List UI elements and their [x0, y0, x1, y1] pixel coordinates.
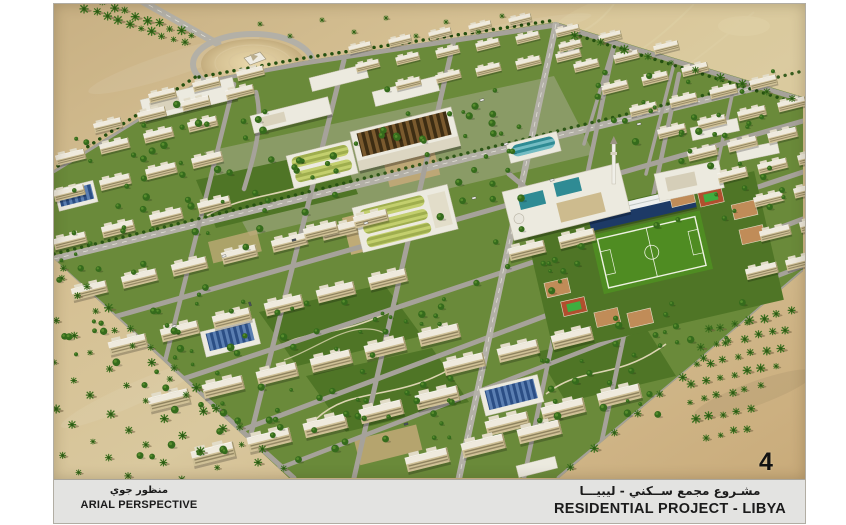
caption-right-english: RESIDENTIAL PROJECT - LIBYA — [545, 500, 795, 518]
masterplan-scene — [54, 4, 805, 479]
title-block: منظور جوي ARIAL PERSPECTIVE مشـروع مجمع … — [54, 479, 805, 523]
caption-left-arabic: منظور جوي — [64, 484, 214, 498]
page-number: 4 — [748, 448, 784, 477]
caption-right-arabic: مشـروع مجمع ســكني - ليبيـــا — [545, 483, 795, 500]
caption-left-english: ARIAL PERSPECTIVE — [64, 498, 214, 512]
aerial-rendering: 4 — [54, 4, 805, 479]
caption-right: مشـروع مجمع ســكني - ليبيـــا RESIDENTIA… — [545, 483, 795, 518]
caption-left: منظور جوي ARIAL PERSPECTIVE — [64, 484, 214, 512]
presentation-sheet: 4 منظور جوي ARIAL PERSPECTIVE مشـروع مجم… — [53, 3, 806, 524]
